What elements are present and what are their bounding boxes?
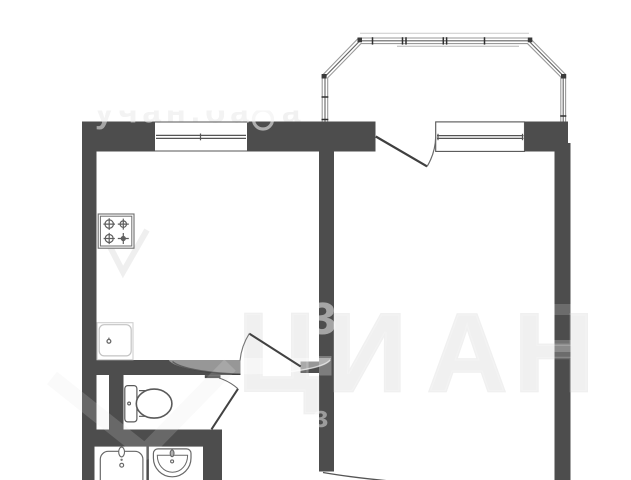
svg-text:з: з [313,399,328,434]
svg-text:з: з [308,282,337,347]
